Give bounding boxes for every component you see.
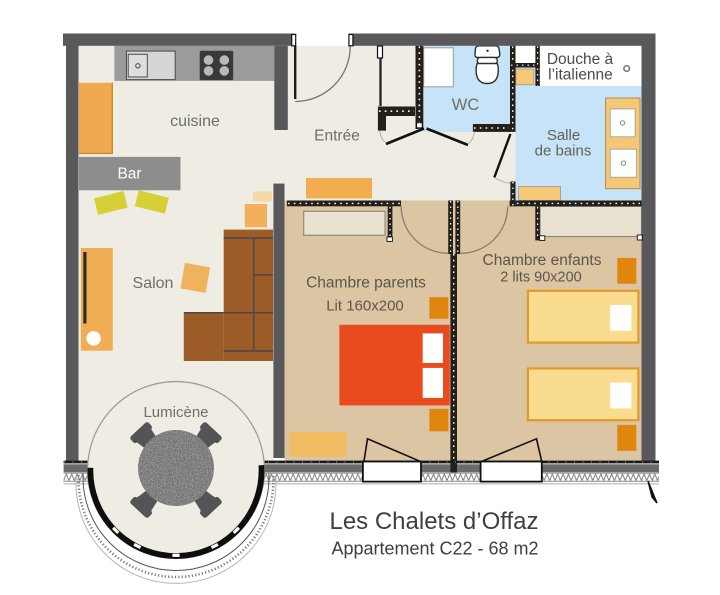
svg-text:Salle: Salle — [547, 127, 580, 144]
svg-text:Douche à: Douche à — [547, 51, 614, 68]
svg-text:Bar: Bar — [117, 166, 141, 183]
svg-text:Appartement C22 - 68 m2: Appartement C22 - 68 m2 — [331, 539, 538, 559]
svg-text:Salon: Salon — [133, 275, 174, 292]
svg-text:Chambre enfants: Chambre enfants — [483, 252, 602, 269]
svg-text:cuisine: cuisine — [170, 113, 220, 130]
svg-text:Lumicène: Lumicène — [143, 404, 208, 421]
svg-text:l’italienne: l’italienne — [548, 67, 613, 84]
svg-text:Lit 160x200: Lit 160x200 — [326, 298, 404, 315]
svg-text:2 lits 90x200: 2 lits 90x200 — [500, 270, 581, 286]
svg-text:Les Chalets d’Offaz: Les Chalets d’Offaz — [329, 508, 538, 535]
svg-text:WC: WC — [452, 96, 480, 114]
svg-text:Entrée: Entrée — [314, 128, 360, 145]
svg-text:de bains: de bains — [535, 143, 592, 160]
svg-text:Chambre parents: Chambre parents — [306, 275, 426, 292]
